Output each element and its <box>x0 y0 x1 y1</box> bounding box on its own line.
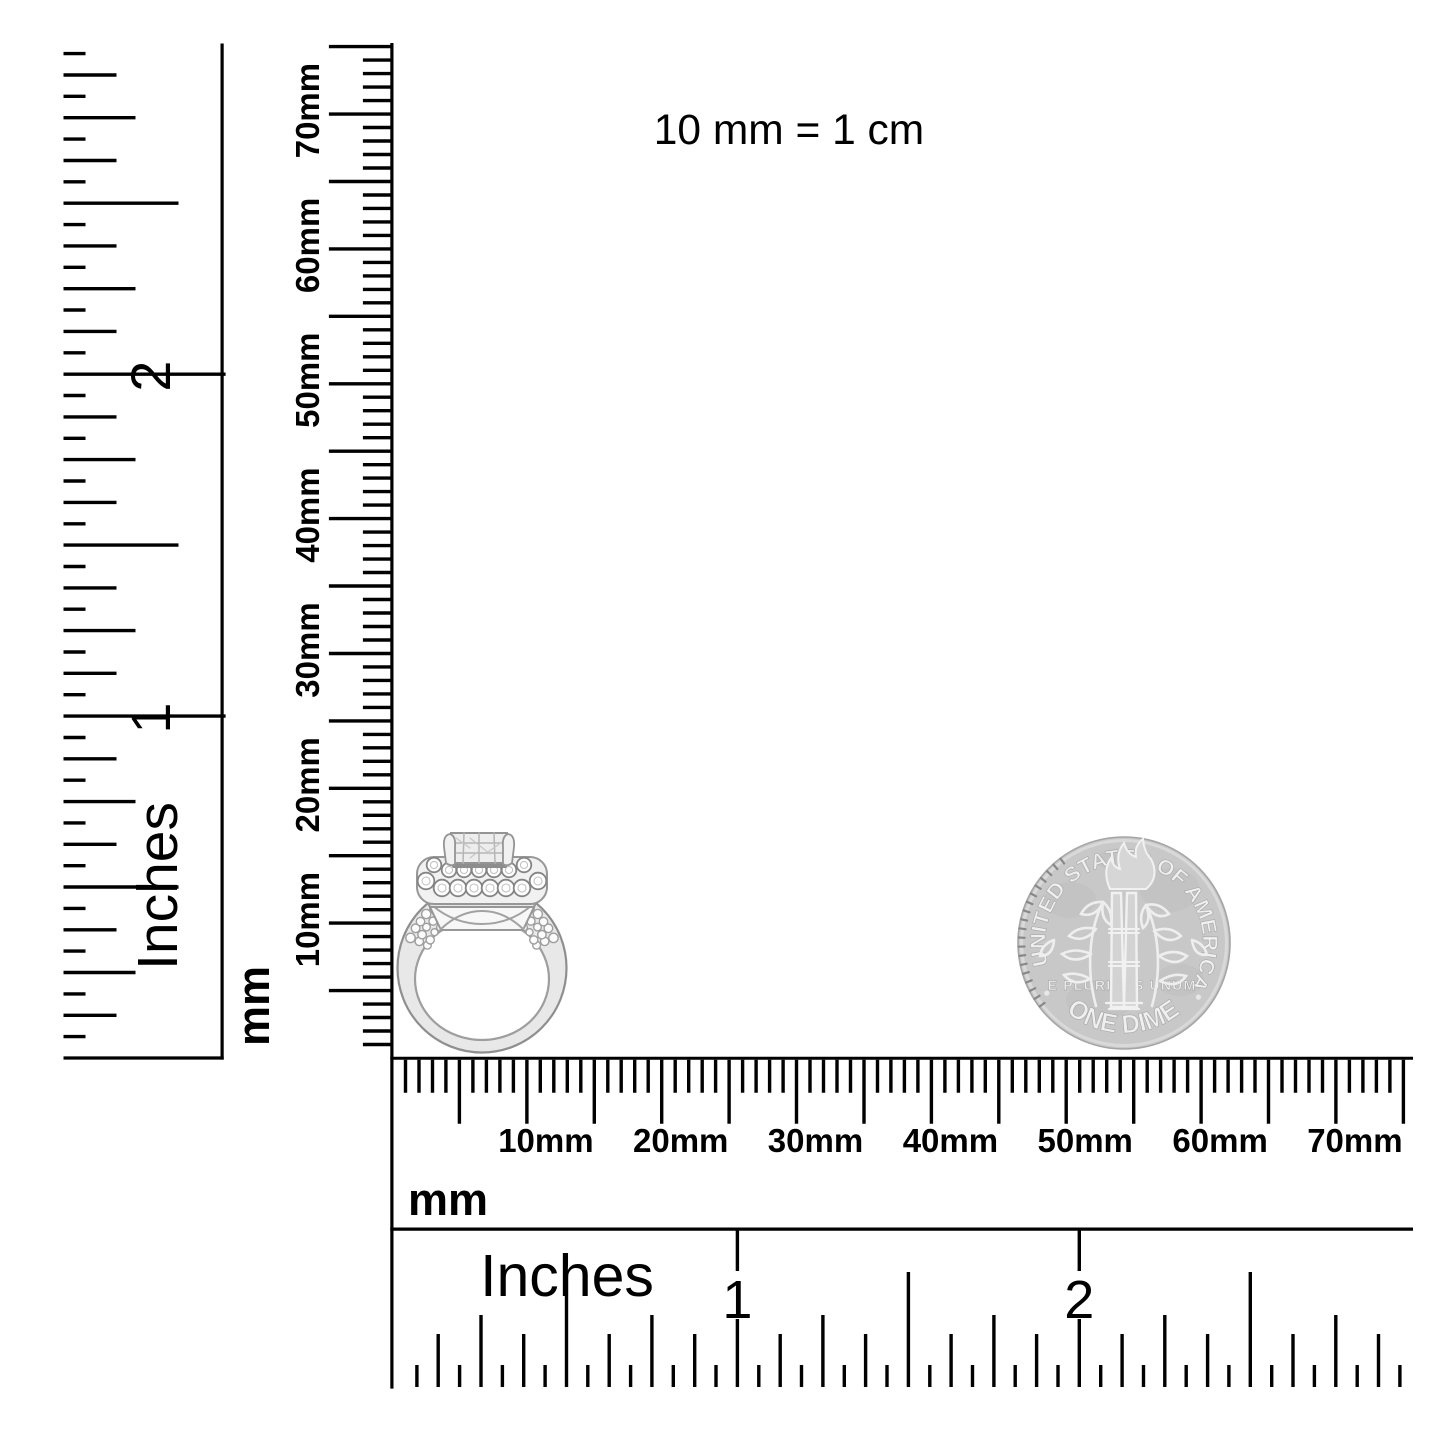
svg-text:10 mm = 1 cm: 10 mm = 1 cm <box>654 107 924 154</box>
svg-text:40mm: 40mm <box>903 1122 998 1159</box>
svg-text:10mm: 10mm <box>289 872 326 967</box>
svg-text:20mm: 20mm <box>633 1122 728 1159</box>
svg-text:1: 1 <box>722 1270 752 1330</box>
svg-text:Inches: Inches <box>480 1243 654 1309</box>
svg-text:30mm: 30mm <box>768 1122 863 1159</box>
svg-text:mm: mm <box>408 1174 488 1225</box>
svg-text:30mm: 30mm <box>289 602 326 697</box>
svg-text:Inches: Inches <box>126 802 190 970</box>
svg-text:mm: mm <box>228 966 279 1046</box>
svg-text:70mm: 70mm <box>289 63 326 158</box>
svg-text:10mm: 10mm <box>498 1122 593 1159</box>
svg-text:60mm: 60mm <box>1172 1122 1267 1159</box>
svg-text:70mm: 70mm <box>1307 1122 1402 1159</box>
svg-text:40mm: 40mm <box>289 467 326 562</box>
svg-text:2: 2 <box>119 361 182 392</box>
svg-text:50mm: 50mm <box>1038 1122 1133 1159</box>
svg-text:1: 1 <box>119 703 182 734</box>
svg-text:60mm: 60mm <box>289 198 326 293</box>
svg-text:2: 2 <box>1064 1270 1094 1330</box>
svg-text:50mm: 50mm <box>289 333 326 428</box>
svg-text:20mm: 20mm <box>289 737 326 832</box>
